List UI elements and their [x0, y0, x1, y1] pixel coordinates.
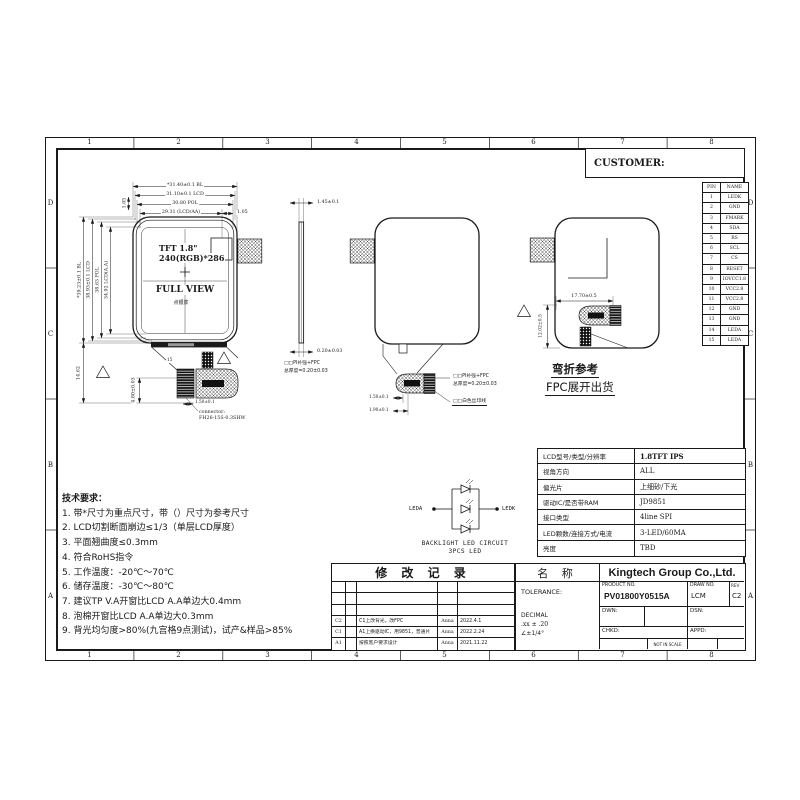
rev-date: 2021.11.22	[458, 638, 514, 649]
pin-col-header: PIN	[703, 183, 721, 193]
fpc-ship-flat-note: FPC展开出货	[545, 381, 615, 396]
led-circuit-count: 3PCS LED	[447, 548, 482, 555]
customer-box: CUSTOMER:	[585, 148, 745, 178]
sheet-cell: SHEET: 1-1	[718, 639, 744, 649]
rev-by: Anna	[438, 616, 458, 627]
zone-row-right: B	[745, 399, 756, 530]
zone-row-left: B	[45, 399, 56, 530]
rev-id: A1	[332, 638, 346, 649]
zone-col-bottom: 8	[667, 650, 756, 661]
tech-req-item: 2. LCD切割断面崩边≤1/3（单层LCD厚度）	[62, 521, 334, 536]
tech-req-title: 技术要求：	[62, 492, 334, 507]
dim-pol-width: 30.80 POL	[171, 201, 199, 206]
dsn-label: DSN:	[688, 607, 744, 614]
revision-table: 修 改 记 录 C2 C1上改背光，改FPC Anna 2022.4.1 C1 …	[331, 563, 515, 651]
technical-requirements: 技术要求： 1. 带*尺寸为重点尺寸，带（）尺寸为参考尺寸 2. LCD切割断面…	[62, 492, 334, 639]
back-dim-2: 1.90±0.1	[368, 408, 390, 413]
display-resolution: 240(RGB)*286	[158, 253, 225, 263]
tech-req-item: 6. 储存温度：-30℃～80℃	[62, 580, 334, 595]
rev-desc: A1上换驱动IC，用9851，普通片	[357, 627, 438, 638]
tech-req-item: 8. 泡棉开窗比LCD A.A单边大0.3mm	[62, 610, 334, 625]
rev-date: 2022.2.24	[458, 627, 514, 638]
decimal-tolerance: .xx ± .20	[521, 621, 548, 628]
tolerance-cell: TOLERANCE: DECIMAL .xx ± .20 ∠±1/4°	[516, 582, 600, 649]
fpc-stiffener-note: □□PI补强+FPC	[283, 361, 321, 366]
dim-aa-width: 29.31 (LCD/AA)	[161, 210, 201, 215]
zone-col-top: 8	[667, 137, 756, 148]
dim-lcd-width: 31.10±0.1 LCD	[165, 192, 205, 197]
zone-row-left: D	[45, 137, 56, 268]
dim-connector-height: 4.80±0.03	[131, 376, 136, 403]
back-dim-1: 1.50±0.1	[368, 395, 390, 400]
dwn-cell: DWN:	[600, 607, 688, 627]
rev-value: C2	[730, 588, 744, 600]
back-stiffener-note: □□PI补强+FPC	[452, 374, 490, 379]
rev-desc: C1上改背光，改FPC	[357, 616, 438, 627]
chkd-label: CHKD:	[600, 627, 687, 634]
name-cell: 名 称	[516, 564, 600, 582]
zone-col-bottom: 6	[489, 650, 578, 661]
full-view-caption: FULL VIEW	[155, 285, 215, 295]
zone-col-bottom: 7	[578, 650, 667, 661]
zone-col-top: 5	[400, 137, 489, 148]
tech-req-item: 1. 带*尺寸为重点尺寸，带（）尺寸为参考尺寸	[62, 507, 334, 522]
zone-col-top: 4	[312, 137, 401, 148]
title-block: 名 称 Kingtech Group Co.,Ltd. TOLERANCE: D…	[515, 563, 746, 651]
dim-offset-right: 1.05	[236, 210, 249, 215]
dim-tail-height: 14.62	[76, 365, 81, 381]
product-no-cell: PRODUCT NO. PV01800Y0515A	[600, 582, 688, 607]
zone-col-bottom: 4	[312, 650, 401, 661]
tech-req-item: 3. 平面翘曲度≤0.3mm	[62, 536, 334, 551]
connector-part-number: FH26-15S-0.3SHW	[198, 416, 246, 421]
zone-row-right: A	[745, 530, 756, 661]
glue-note: 点银浆	[172, 301, 189, 307]
connector-label: connector:	[198, 410, 226, 415]
tech-req-item: 9. 背光均匀度>80%(九宫格9点测试)，试产&样品>85%	[62, 624, 334, 639]
dim-connector-width: 1.50±0.1	[194, 400, 216, 405]
zone-col-bottom: 1	[45, 650, 134, 661]
rev-by: Anna	[438, 638, 458, 649]
led-circuit-caption: BACKLIGHT LED CIRCUIT	[421, 540, 510, 547]
dim-bl-width: *31.40±0.1 BL	[166, 183, 204, 188]
rev-by: Anna	[438, 627, 458, 638]
dim-module-thickness: 1.45±0.1	[316, 200, 340, 205]
bend-dim-height: 12.02±0.5	[540, 313, 545, 339]
appd-cell: APPD:	[688, 627, 744, 639]
scale-note: NOT IN SCALE	[648, 639, 688, 649]
decimal-label: DECIMAL	[521, 612, 548, 619]
tolerance-label: TOLERANCE:	[521, 588, 562, 596]
zone-row-left: A	[45, 530, 56, 661]
dim-aa-height: 34.92 LCD(A.A)	[104, 260, 109, 300]
zone-col-bottom: 2	[134, 650, 223, 661]
dim-lcd-height: 38.93±0.1 LCD	[86, 260, 91, 300]
company-name: Kingtech Group Co.,Ltd.	[600, 564, 744, 582]
pin-table: PIN NAME 1LEDK 2GND 3FMARK 4SDA 5RS 6SCL…	[702, 182, 749, 346]
product-no-value: PV01800Y0515A	[600, 588, 687, 601]
fpc-thickness-note: 总厚度=0.20±0.03	[283, 369, 329, 374]
zone-col-bottom: 5	[400, 650, 489, 661]
dim-offset-top: 1.05	[122, 197, 127, 210]
ledk-label: LEDK	[501, 506, 516, 512]
leda-label: LEDA	[408, 506, 423, 512]
projection-cell	[600, 639, 648, 649]
pin15-label: 15	[166, 358, 173, 363]
zone-col-top: 7	[578, 137, 667, 148]
draw-no-cell: DRAW NO. LCM	[688, 582, 730, 607]
dim-bl-height: *39.23±0.1 BL	[77, 261, 82, 299]
appd-label: APPD:	[688, 627, 744, 634]
dim-pol-height: 38.63 POL	[95, 266, 100, 294]
zone-col-bottom: 3	[223, 650, 312, 661]
dim-fpc-thickness: 0.20±0.03	[316, 349, 343, 354]
display-title: TFT 1.8"	[158, 243, 198, 253]
rev-date: 2022.4.1	[458, 616, 514, 627]
tech-req-item: 5. 工作温度：-20℃～70℃	[62, 566, 334, 581]
name-col-header: NAME	[721, 183, 748, 193]
rev-desc: 按照客户要求设计	[357, 638, 438, 649]
tech-req-item: 4. 符合RoHS指令	[62, 551, 334, 566]
zone-row-left: C	[45, 268, 56, 399]
customer-label: CUSTOMER:	[594, 158, 665, 169]
tech-req-item: 7. 建议TP V.A开窗比LCD A.A单边大0.4mm	[62, 595, 334, 610]
zone-col-top: 1	[45, 137, 134, 148]
draw-no-value: LCM	[688, 588, 729, 600]
zone-col-top: 2	[134, 137, 223, 148]
rev-id: C2	[332, 616, 346, 627]
chkd-cell: CHKD:	[600, 627, 688, 639]
revision-table-title: 修 改 记 录	[332, 564, 514, 582]
rev-cell: REV C2	[730, 582, 744, 607]
rev-id: C1	[332, 627, 346, 638]
silkscreen-note: □□白色丝印线	[452, 399, 487, 406]
unit-cell: UNIT: mm	[688, 639, 718, 649]
dsn-cell: DSN:	[688, 607, 744, 627]
back-thickness-note: 总厚度=0.20±0.03	[452, 382, 498, 387]
zone-col-top: 3	[223, 137, 312, 148]
bend-dim-width: 17.70±0.5	[570, 294, 597, 299]
zone-col-top: 6	[489, 137, 578, 148]
bend-reference-title: 弯折参考	[551, 363, 599, 378]
angle-tolerance: ∠±1/4°	[521, 630, 544, 637]
spec-table: LCD型号/类型/分辨率1.8TFT IPS 视角方向ALL 偏光片上细砂/下光…	[537, 448, 746, 557]
